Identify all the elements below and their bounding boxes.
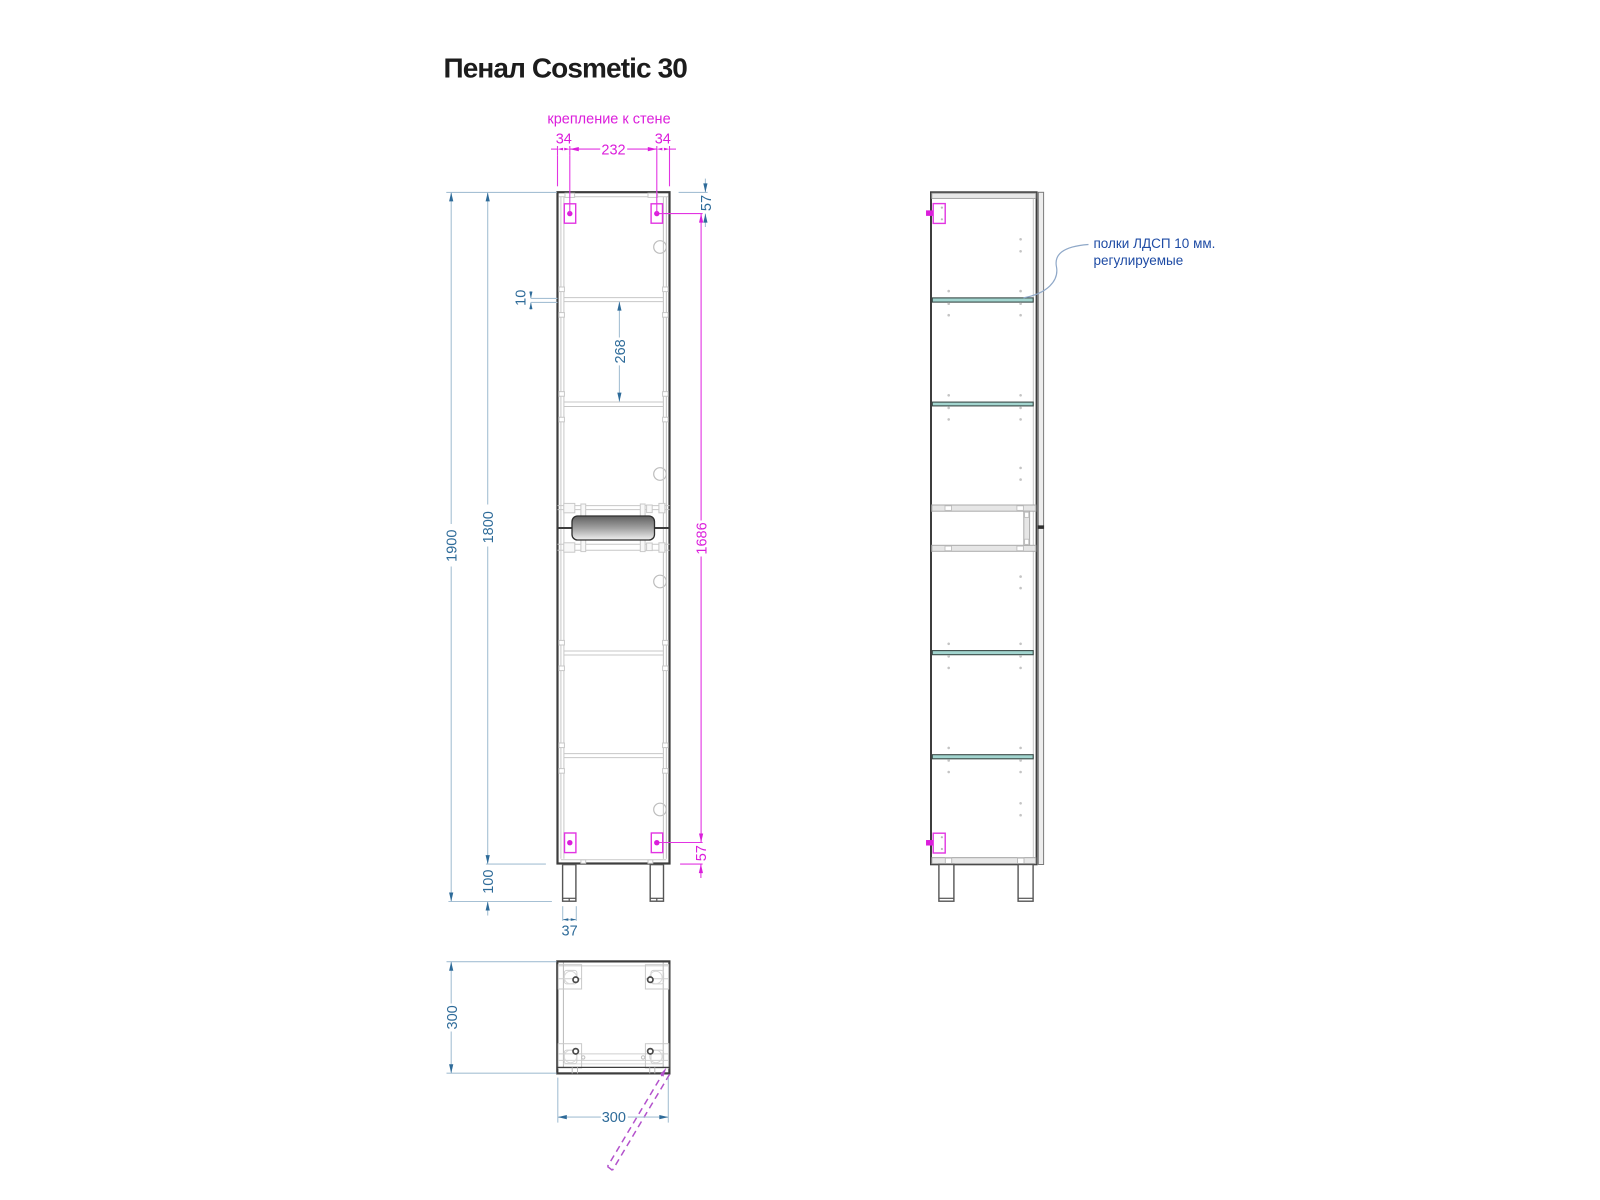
svg-text:Пенал Cosmetic 30: Пенал Cosmetic 30 bbox=[444, 53, 688, 84]
svg-text:57: 57 bbox=[699, 195, 715, 211]
svg-text:1800: 1800 bbox=[481, 511, 497, 543]
svg-text:полки ЛДСП 10 мм.: полки ЛДСП 10 мм. bbox=[1094, 236, 1216, 251]
svg-text:57: 57 bbox=[694, 845, 710, 861]
svg-text:300: 300 bbox=[445, 1005, 461, 1029]
svg-text:268: 268 bbox=[613, 339, 629, 363]
svg-text:37: 37 bbox=[562, 924, 578, 940]
svg-text:регулируемые: регулируемые bbox=[1094, 253, 1184, 268]
svg-text:10: 10 bbox=[514, 290, 530, 306]
svg-text:34: 34 bbox=[556, 132, 572, 148]
svg-text:1686: 1686 bbox=[695, 522, 711, 554]
svg-text:232: 232 bbox=[601, 142, 625, 158]
svg-text:1900: 1900 bbox=[445, 530, 461, 562]
svg-text:100: 100 bbox=[481, 870, 497, 894]
svg-text:34: 34 bbox=[655, 132, 671, 148]
svg-text:300: 300 bbox=[602, 1110, 626, 1126]
svg-text:крепление к стене: крепление к стене bbox=[547, 111, 670, 127]
